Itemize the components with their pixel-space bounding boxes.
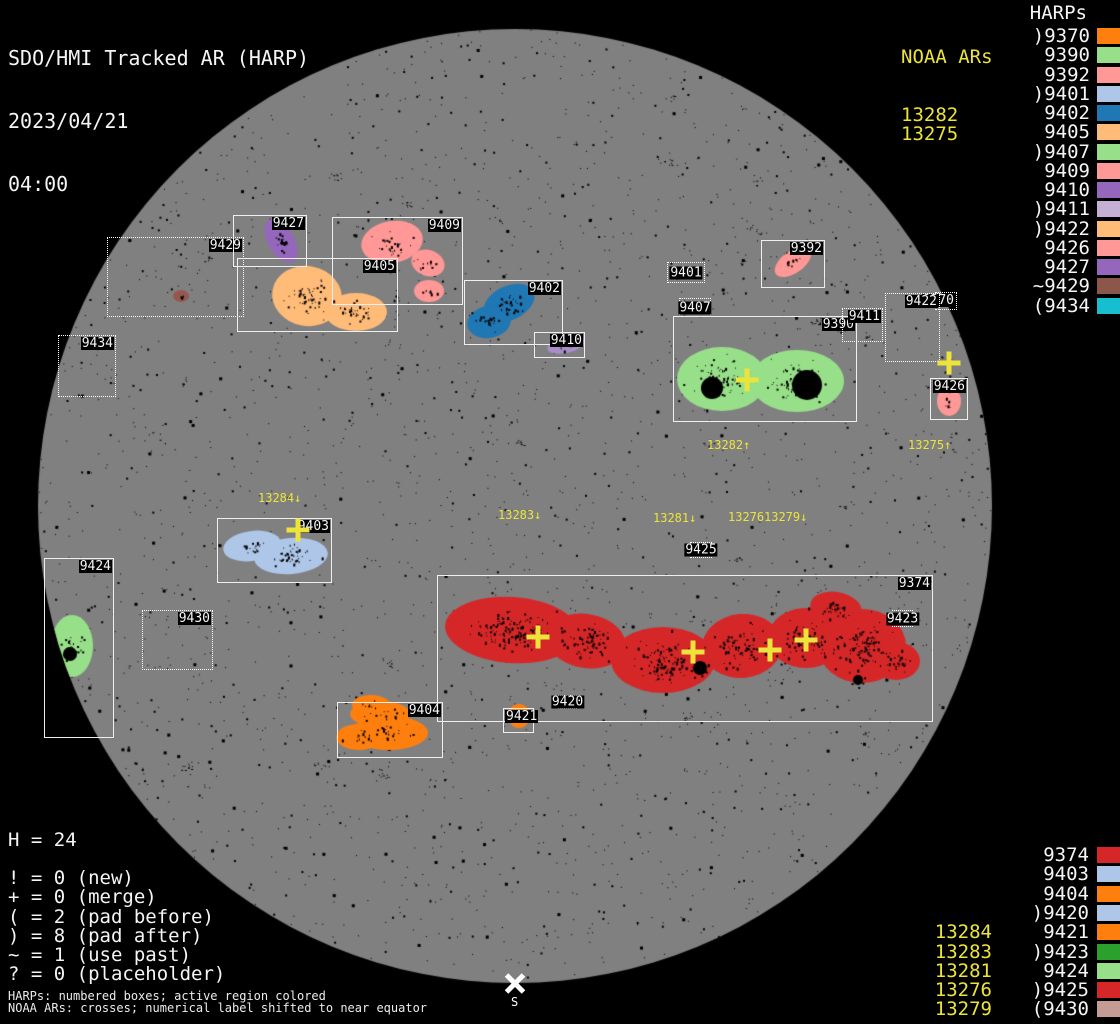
flag-legend-line: + = 0 (merge) xyxy=(8,888,225,907)
harp-color-swatch xyxy=(1097,963,1120,979)
noaa-shifted-label: 13283↓ xyxy=(498,509,541,521)
harp-number: 9374 xyxy=(1043,846,1089,865)
footnote-line: NOAA ARs: crosses; numerical label shift… xyxy=(8,1003,427,1015)
noaa-cross-icon xyxy=(794,628,819,653)
noaa-cross-icon xyxy=(735,368,760,393)
noaa-shifted-label: 13284↓ xyxy=(258,492,301,504)
harp-box-9403: 9403 xyxy=(217,518,332,583)
harp-number: )9425 xyxy=(1032,981,1089,1000)
harp-color-swatch xyxy=(1097,298,1120,314)
noaa-ar-number: 13279 xyxy=(935,1000,992,1019)
harp-box-label-9430: 9430 xyxy=(178,612,211,625)
harps-list-row: )9422 xyxy=(1000,220,1120,239)
harp-box-label-9411: 9411 xyxy=(848,310,881,323)
harp-number: 9392 xyxy=(1044,66,1090,85)
harp-box-9411: 9411 xyxy=(842,308,883,342)
harps-list-row: )9407 xyxy=(1000,143,1120,162)
harp-number: 9390 xyxy=(1044,46,1090,65)
noaa-ar-number: 13275 xyxy=(901,125,993,144)
harp-box-label-9424: 9424 xyxy=(79,560,112,573)
noaa-ar-number: 13283 xyxy=(935,943,992,962)
harp-box-label-9422: 9422 xyxy=(905,295,938,308)
harps-list-row: 13279(9430 xyxy=(900,1000,1120,1019)
noaa-ar-number: 13276 xyxy=(935,981,992,1000)
harp-color-swatch xyxy=(1097,28,1120,44)
harp-box-9422: 9422 xyxy=(885,293,940,362)
harp-number: )9423 xyxy=(1032,943,1089,962)
harp-box-9423: 9423 xyxy=(892,610,913,627)
noaa-cross-icon xyxy=(758,638,783,663)
page-title: SDO/HMI Tracked AR (HARP) 2023/04/21 04:… xyxy=(8,6,309,237)
flag-legend-line: ? = 0 (placeholder) xyxy=(8,965,225,984)
harp-box-9430: 9430 xyxy=(142,610,213,670)
harp-box-label-9434: 9434 xyxy=(81,337,114,350)
harp-number: 9402 xyxy=(1044,104,1090,123)
harp-color-swatch xyxy=(1097,182,1120,198)
harp-number: 9403 xyxy=(1043,865,1089,884)
harps-list-row: 9410 xyxy=(1000,181,1120,200)
harp-box-9401: 9401 xyxy=(667,262,705,283)
harp-box-label-9392: 9392 xyxy=(790,242,823,255)
harp-number: 9424 xyxy=(1043,962,1089,981)
harp-box-9426: 9426 xyxy=(930,378,968,420)
harp-number: 9426 xyxy=(1044,239,1090,258)
harp-color-swatch xyxy=(1097,866,1120,882)
harp-number: ~9429 xyxy=(1033,277,1090,296)
harps-list-row: 13283)9423 xyxy=(900,943,1120,962)
harp-box-9429: 9429 xyxy=(107,237,244,317)
harp-color-swatch xyxy=(1097,201,1120,217)
noaa-shifted-label: 13282↑ xyxy=(707,439,750,451)
harp-box-label-9425: 9425 xyxy=(684,544,717,557)
harps-list-row: 9405 xyxy=(1000,123,1120,142)
harp-number: )9407 xyxy=(1033,143,1090,162)
harp-box-9424: 9424 xyxy=(44,558,114,738)
harp-box-9434: 9434 xyxy=(58,335,116,397)
noaa-ars-values: 1328213275 xyxy=(901,106,993,144)
flag-legend: ! = 0 (new)+ = 0 (merge)( = 2 (pad befor… xyxy=(8,869,225,985)
date-line: 2023/04/21 xyxy=(8,111,309,132)
harp-box-label-9404: 9404 xyxy=(408,704,441,717)
noaa-cross-icon xyxy=(286,518,311,543)
harps-list-row: 9409 xyxy=(1000,162,1120,181)
harps-list-row: 132849421 xyxy=(900,923,1120,942)
harp-color-swatch xyxy=(1097,982,1120,998)
harp-box-label-9421: 9421 xyxy=(505,710,538,723)
harp-number: (9434 xyxy=(1033,297,1090,316)
noaa-shifted-label: 13276 xyxy=(728,511,764,523)
noaa-ars-panel: NOAA ARs 1328213275 xyxy=(901,10,993,183)
harps-list-header: HARPs xyxy=(1030,4,1087,23)
harps-list-row: 9427 xyxy=(1000,258,1120,277)
noaa-cross-icon xyxy=(681,640,706,665)
harps-list-row: 132819424 xyxy=(900,962,1120,981)
harp-box-label-9410: 9410 xyxy=(550,334,583,347)
harp-color-swatch xyxy=(1097,105,1120,121)
south-label: S xyxy=(511,996,518,1008)
harp-box-label-9401: 9401 xyxy=(669,266,702,279)
south-x-icon xyxy=(504,972,526,994)
noaa-cross-icon xyxy=(526,625,551,650)
harps-list-row: 9404 xyxy=(900,885,1120,904)
harp-number: 9409 xyxy=(1044,162,1090,181)
harps-list-row: 9390 xyxy=(1000,46,1120,65)
harp-color-swatch xyxy=(1097,924,1120,940)
noaa-ars-header: NOAA ARs xyxy=(901,48,993,67)
harp-color-swatch xyxy=(1097,67,1120,83)
harps-list-row: 9426 xyxy=(1000,239,1120,258)
noaa-ar-number: 13284 xyxy=(935,923,992,942)
harp-box-9420: 9420 xyxy=(558,695,577,709)
harp-box-9405: 9405 xyxy=(237,258,398,332)
harp-box-label-9423: 9423 xyxy=(886,612,919,625)
harps-list-row: 9402 xyxy=(1000,104,1120,123)
harp-box-label-9409: 9409 xyxy=(428,219,461,232)
figure-footnotes: HARPs: numbered boxes; active region col… xyxy=(8,991,427,1014)
harp-color-swatch xyxy=(1097,144,1120,160)
noaa-ar-number: 13281 xyxy=(935,962,992,981)
harp-box-9392: 9392 xyxy=(761,240,825,288)
harp-box-label-9426: 9426 xyxy=(933,380,966,393)
harp-number: 9410 xyxy=(1044,181,1090,200)
harp-color-swatch xyxy=(1097,240,1120,256)
harps-list-row: )9411 xyxy=(1000,200,1120,219)
harp-color-swatch xyxy=(1097,124,1120,140)
harps-list-row: 9392 xyxy=(1000,66,1120,85)
harp-color-swatch xyxy=(1097,259,1120,275)
harps-list-row: )9401 xyxy=(1000,85,1120,104)
harp-number: 9405 xyxy=(1044,123,1090,142)
harp-color-swatch xyxy=(1097,905,1120,921)
harps-list-row: ~9429 xyxy=(1000,277,1120,296)
flag-legend-line: ( = 2 (pad before) xyxy=(8,908,225,927)
harp-box-label-9402: 9402 xyxy=(528,282,561,295)
noaa-shifted-label: 13281↓ xyxy=(653,512,696,524)
harp-box-9404: 9404 xyxy=(337,702,443,758)
harp-box-9425: 9425 xyxy=(690,542,712,558)
harp-box-9410: 9410 xyxy=(534,332,585,358)
harp-box-label-9420: 9420 xyxy=(551,696,584,709)
harp-box-9390: 9390 xyxy=(673,316,857,422)
harps-list-row: 9403 xyxy=(900,865,1120,884)
noaa-cross-icon xyxy=(937,351,962,376)
time-line: 04:00 xyxy=(8,174,309,195)
harp-box-9421: 9421 xyxy=(503,708,534,733)
harps-list-row: )9420 xyxy=(900,904,1120,923)
harp-box-label-9405: 9405 xyxy=(363,260,396,273)
harp-box-9407: 9407 xyxy=(679,298,711,317)
harp-color-swatch xyxy=(1097,1001,1120,1017)
title-line: SDO/HMI Tracked AR (HARP) xyxy=(8,48,309,69)
harp-number: )9422 xyxy=(1033,220,1090,239)
harp-color-swatch xyxy=(1097,47,1120,63)
harp-number: )9401 xyxy=(1033,85,1090,104)
harp-number: (9430 xyxy=(1032,1000,1089,1019)
harp-color-swatch xyxy=(1097,278,1120,294)
harp-color-swatch xyxy=(1097,847,1120,863)
harp-number: 9404 xyxy=(1043,885,1089,904)
harp-number: )9420 xyxy=(1032,904,1089,923)
harp-tracking-figure: SDO/HMI Tracked AR (HARP) 2023/04/21 04:… xyxy=(0,0,1120,1024)
harp-color-swatch xyxy=(1097,944,1120,960)
harp-color-swatch xyxy=(1097,221,1120,237)
harp-color-swatch xyxy=(1097,886,1120,902)
harp-number: )9411 xyxy=(1033,200,1090,219)
noaa-shifted-label: 13275↑ xyxy=(908,439,951,451)
noaa-shifted-label: 13279↓ xyxy=(764,511,807,523)
harp-color-swatch xyxy=(1097,163,1120,179)
harps-list-row: )9370 xyxy=(1000,27,1120,46)
harps-list-row: (9434 xyxy=(1000,297,1120,316)
harp-color-swatch xyxy=(1097,86,1120,102)
harp-count: H = 24 xyxy=(8,831,77,850)
harp-number: 9421 xyxy=(1043,923,1089,942)
harp-box-label-9374: 9374 xyxy=(898,577,931,590)
harp-number: )9370 xyxy=(1033,27,1090,46)
harp-number: 9427 xyxy=(1044,258,1090,277)
harps-list-row: 9374 xyxy=(900,846,1120,865)
harps-list-row: 13276)9425 xyxy=(900,981,1120,1000)
harp-box-label-9407: 9407 xyxy=(678,301,711,314)
